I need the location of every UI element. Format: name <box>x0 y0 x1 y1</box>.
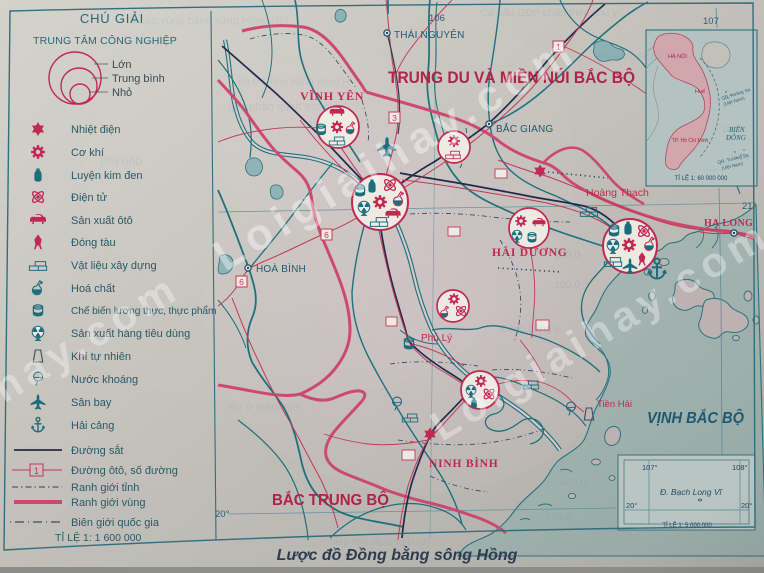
svg-text:Hoàng Thạch: Hoàng Thạch <box>586 187 649 199</box>
svg-text:Huế: Huế <box>695 89 705 95</box>
svg-text:Ranh giới tỉnh: Ranh giới tỉnh <box>71 482 139 494</box>
svg-text:Sân bay: Sân bay <box>71 397 112 409</box>
svg-text:1: 1 <box>34 466 39 476</box>
svg-text:Biên giới quốc gia: Biên giới quốc gia <box>71 517 160 529</box>
svg-text:Nhiệt điện: Nhiệt điện <box>71 124 121 136</box>
svg-text:100,0: 100,0 <box>722 124 745 134</box>
svg-text:gòp phần quan trọng: gòp phần quan trọng <box>228 101 330 113</box>
svg-text:Đóng tàu: Đóng tàu <box>71 237 116 249</box>
svg-text:169,6: 169,6 <box>545 511 571 523</box>
svg-text:Nhỏ: Nhỏ <box>112 87 132 99</box>
svg-text:100,0: 100,0 <box>554 279 580 291</box>
svg-text:HOÀ BÌNH: HOÀ BÌNH <box>256 262 306 275</box>
svg-text:Vật liệu xây dựng: Vật liệu xây dựng <box>71 260 157 272</box>
svg-text:NINH BÌNH: NINH BÌNH <box>429 456 499 470</box>
svg-text:THÁI NGUYÊN: THÁI NGUYÊN <box>394 28 465 41</box>
svg-text:TRUNG TÂM CÔNG NGHIỆP: TRUNG TÂM CÔNG NGHIỆP <box>33 34 177 47</box>
svg-text:Luyện kim đen: Luyện kim đen <box>71 170 143 182</box>
svg-text:Lược đồ Đồng bằng sông Hồng: Lược đồ Đồng bằng sông Hồng <box>277 545 518 564</box>
svg-text:TỈ LỆ 1: 1 600 000: TỈ LỆ 1: 1 600 000 <box>55 531 142 544</box>
svg-text:6: 6 <box>239 277 244 287</box>
svg-text:Sản xuất ôtô: Sản xuất ôtô <box>71 215 133 227</box>
svg-text:Ranh giới vùng: Ranh giới vùng <box>71 497 145 509</box>
svg-text:ệp ở Đồng bằng sông H: ệp ở Đồng bằng sông H <box>238 75 350 88</box>
svg-text:(%) oõb: (%) oõb <box>100 154 142 168</box>
svg-text:20°: 20° <box>215 509 230 520</box>
svg-text:107: 107 <box>703 16 719 27</box>
svg-text:20°: 20° <box>741 501 752 510</box>
svg-text:108°: 108° <box>732 463 748 472</box>
svg-text:TỈ LỆ 1: 60 000 000: TỈ LỆ 1: 60 000 000 <box>675 174 728 182</box>
svg-text:20°: 20° <box>626 501 637 510</box>
svg-text:ờ các vùng bằng sông Hồng (%): ờ các vùng bằng sông Hồng (%) <box>130 14 288 27</box>
svg-text:Cơ khí: Cơ khí <box>71 147 104 159</box>
svg-text:Phủ Lý: Phủ Lý <box>421 332 452 344</box>
svg-text:VỊNH BẮC BỘ: VỊNH BẮC BỘ <box>647 408 745 427</box>
svg-text:1990: 1990 <box>730 152 750 162</box>
svg-text:460,0: 460,0 <box>560 477 586 489</box>
svg-text:107°: 107° <box>642 463 658 472</box>
svg-text:Hải cảng: Hải cảng <box>71 420 114 432</box>
svg-text:100,0: 100,0 <box>554 249 580 261</box>
svg-text:iều ở triệu ngư: iều ở triệu ngư <box>228 401 301 413</box>
svg-text:Nước khoáng: Nước khoáng <box>71 374 138 386</box>
svg-text:Đường sắt: Đường sắt <box>71 444 124 457</box>
svg-text:Điện tử: Điện tử <box>71 192 108 204</box>
svg-text:ng sông Hồng (%: ng sông Hồng (% <box>600 51 677 63</box>
svg-text:BẮC GIANG: BẮC GIANG <box>496 122 553 135</box>
svg-text:Trung bình: Trung bình <box>112 73 165 85</box>
svg-text:Đ. Bạch Long Vĩ: Đ. Bạch Long Vĩ <box>660 487 724 497</box>
svg-text:BẮC TRUNG BỘ: BẮC TRUNG BỘ <box>272 490 389 509</box>
svg-text:TP. Hồ Chí Minh: TP. Hồ Chí Minh <box>672 138 709 144</box>
svg-text:Tiền Hải: Tiền Hải <box>597 399 632 410</box>
svg-text:Hoá chất: Hoá chất <box>71 283 115 295</box>
svg-text:Lớn: Lớn <box>112 59 131 71</box>
svg-text:Đường ôtô, số đường: Đường ôtô, số đường <box>71 465 178 477</box>
svg-text:3: 3 <box>392 113 397 123</box>
svg-text:Cơ cấu GDP phân theo khu v: Cơ cấu GDP phân theo khu v <box>480 7 618 19</box>
svg-text:6: 6 <box>324 230 329 240</box>
